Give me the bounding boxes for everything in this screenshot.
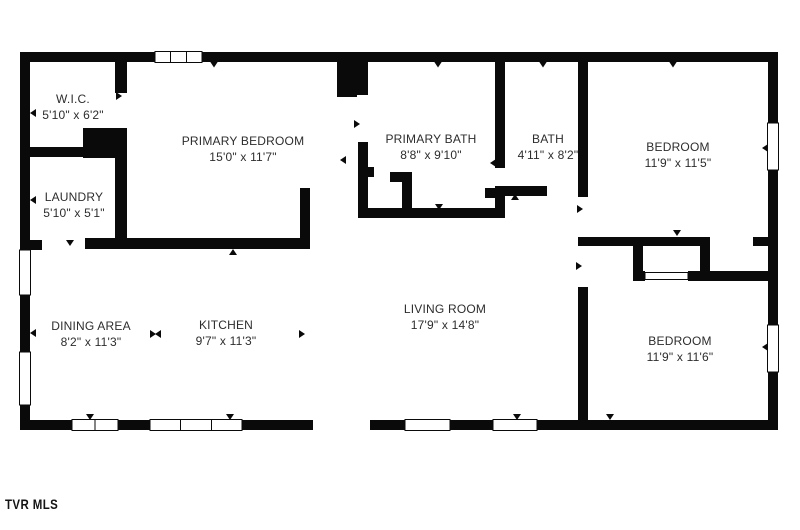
- room-label-bath: BATH 4'11" x 8'2": [518, 131, 579, 163]
- room-name: BEDROOM: [645, 139, 712, 155]
- room-label-primary-bedroom: PRIMARY BEDROOM 15'0" x 11'7": [182, 133, 305, 165]
- room-dimensions: 4'11" x 8'2": [518, 147, 579, 163]
- room-dimensions: 17'9" x 14'8": [404, 317, 486, 333]
- room-dimensions: 5'10" x 6'2": [42, 107, 104, 123]
- room-name: W.I.C.: [42, 91, 104, 107]
- room-label-bedroom-bottom: BEDROOM 11'9" x 11'6": [647, 333, 714, 365]
- room-name: PRIMARY BEDROOM: [182, 133, 305, 149]
- room-name: DINING AREA: [51, 318, 131, 334]
- room-name: KITCHEN: [196, 317, 257, 333]
- room-name: PRIMARY BATH: [385, 131, 476, 147]
- room-label-bedroom-top: BEDROOM 11'9" x 11'5": [645, 139, 712, 171]
- floorplan-image: W.I.C. 5'10" x 6'2" LAUNDRY 5'10" x 5'1"…: [0, 0, 800, 530]
- room-dimensions: 11'9" x 11'6": [647, 349, 714, 365]
- room-label-dining-area: DINING AREA 8'2" x 11'3": [51, 318, 131, 350]
- room-label-laundry: LAUNDRY 5'10" x 5'1": [43, 189, 105, 221]
- room-dimensions: 8'8" x 9'10": [385, 147, 476, 163]
- room-name: LIVING ROOM: [404, 301, 486, 317]
- watermark-tvr-mls: TVR MLS: [5, 496, 58, 512]
- closet-bifold-door: [645, 273, 688, 280]
- door-openings: [313, 419, 370, 431]
- room-dimensions: 9'7" x 11'3": [196, 333, 257, 349]
- room-dimensions: 8'2" x 11'3": [51, 334, 131, 350]
- room-label-wic: W.I.C. 5'10" x 6'2": [42, 91, 104, 123]
- room-dimensions: 15'0" x 11'7": [182, 149, 305, 165]
- room-name: LAUNDRY: [43, 189, 105, 205]
- walls: [20, 52, 778, 430]
- room-dimensions: 5'10" x 5'1": [43, 205, 105, 221]
- room-name: BEDROOM: [647, 333, 714, 349]
- room-label-primary-bath: PRIMARY BATH 8'8" x 9'10": [385, 131, 476, 163]
- room-name: BATH: [518, 131, 579, 147]
- room-dimensions: 11'9" x 11'5": [645, 155, 712, 171]
- room-label-living-room: LIVING ROOM 17'9" x 14'8": [404, 301, 486, 333]
- floorplan-drawing: [0, 0, 800, 530]
- room-label-kitchen: KITCHEN 9'7" x 11'3": [196, 317, 257, 349]
